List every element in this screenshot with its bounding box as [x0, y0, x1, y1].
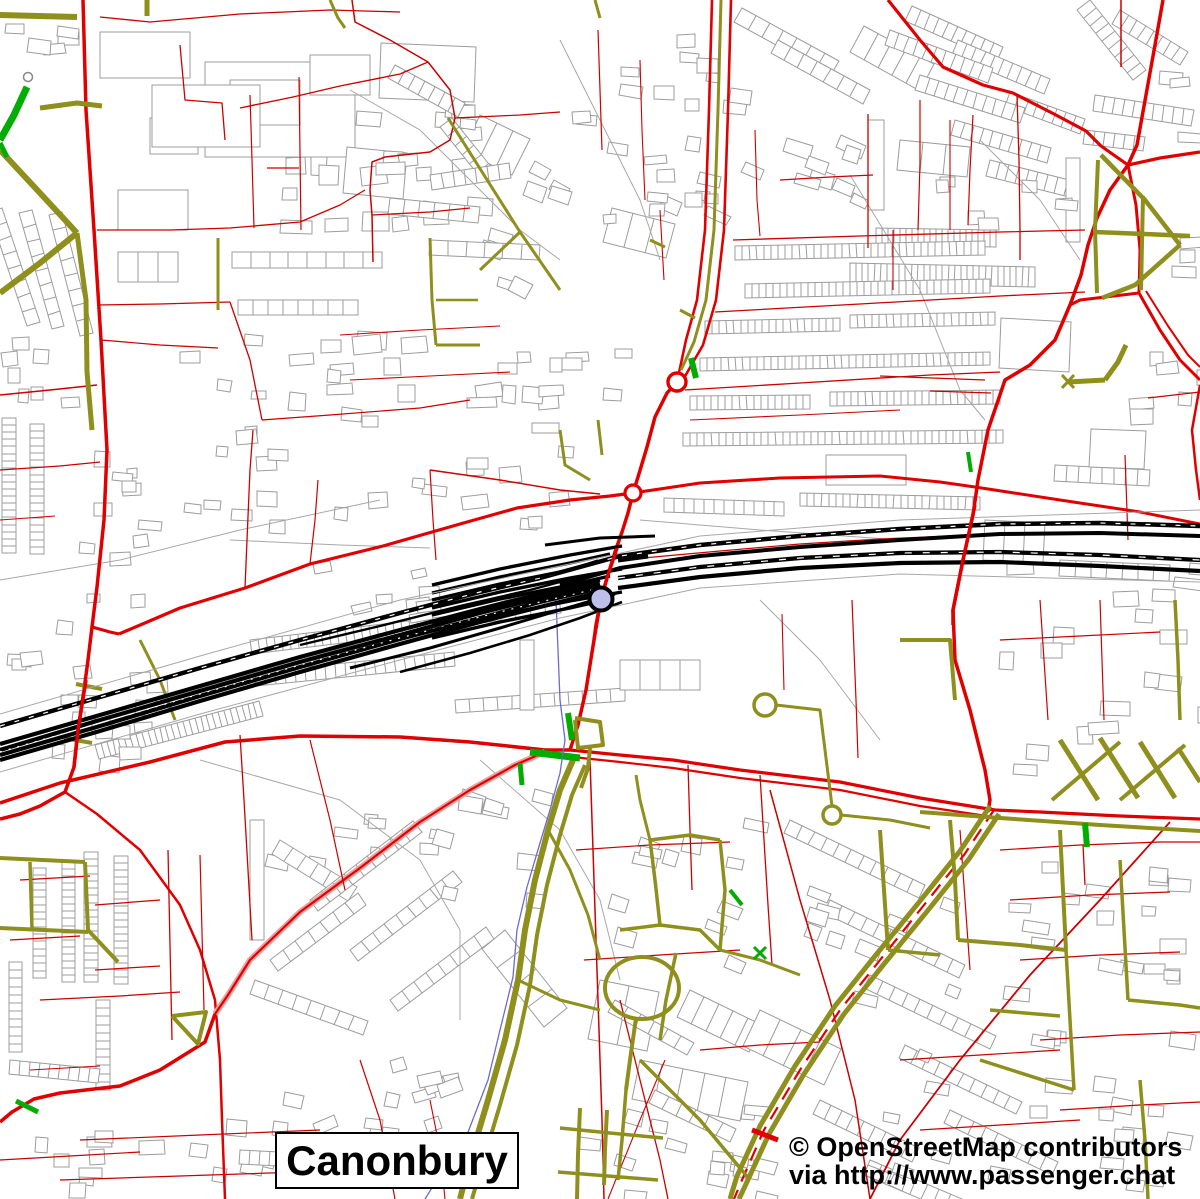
svg-text:© OpenStreetMap contributors: © OpenStreetMap contributors: [789, 1132, 1182, 1162]
svg-text:via http://www.passenger.chat: via http://www.passenger.chat: [789, 1160, 1175, 1190]
svg-text:Canonbury: Canonbury: [286, 1137, 508, 1184]
